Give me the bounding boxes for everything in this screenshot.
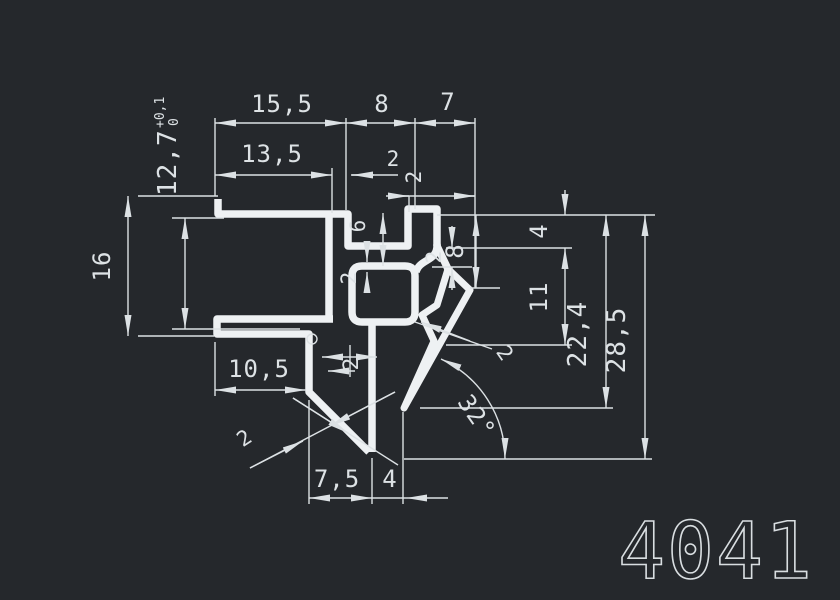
dim-width-total: 15,5 [251, 90, 313, 118]
part-number: 4041 [618, 507, 814, 597]
dim-drop-top: 4 [525, 223, 553, 238]
dim-opening-tol-upper: +0,1 [153, 97, 168, 128]
dim-wall-hook: 2 [402, 171, 426, 184]
dim-width-step: 8 [374, 90, 389, 118]
dim-notch-depth: 6 [346, 220, 370, 233]
dim-width-hook: 7 [440, 88, 455, 116]
dim-hook-depth: 8 [441, 243, 469, 258]
dim-outer-height: 16 [88, 251, 116, 282]
dim-lip-angle: 32° [452, 389, 502, 443]
dim-total-depth: 28,5 [602, 307, 632, 374]
dim-flange-width: 10,5 [228, 355, 290, 383]
dimension-labels: 15,5 8 7 13,5 2 2 16 12,7 +0,1 0 6 2 2 2… [88, 88, 632, 493]
dim-spike-width: 7,5 [314, 465, 360, 493]
cad-drawing-canvas: 15,5 8 7 13,5 2 2 16 12,7 +0,1 0 6 2 2 2… [0, 0, 840, 600]
dim-opening-nominal: 12,7 [153, 129, 183, 196]
dim-tip-offset: 4 [382, 465, 397, 493]
dim-pocket-wall: 2 [337, 272, 361, 285]
dim-barb-depth: 11 [525, 282, 553, 313]
profile-outline [217, 199, 470, 452]
dim-wall-step: 2 [387, 147, 400, 171]
dim-width-inner: 13,5 [241, 140, 303, 168]
technical-drawing-profile-4041: 15,5 8 7 13,5 2 2 16 12,7 +0,1 0 6 2 2 2… [0, 0, 840, 600]
dim-center-wall: 2 [339, 358, 363, 371]
profile-pocket [352, 266, 415, 322]
dim-opening-with-tolerance: 12,7 +0,1 0 [153, 97, 183, 196]
dim-opening-tol-lower: 0 [167, 118, 182, 126]
dim-spike-depth: 22,4 [563, 301, 593, 368]
dim-v-wall: 2 [232, 425, 256, 452]
